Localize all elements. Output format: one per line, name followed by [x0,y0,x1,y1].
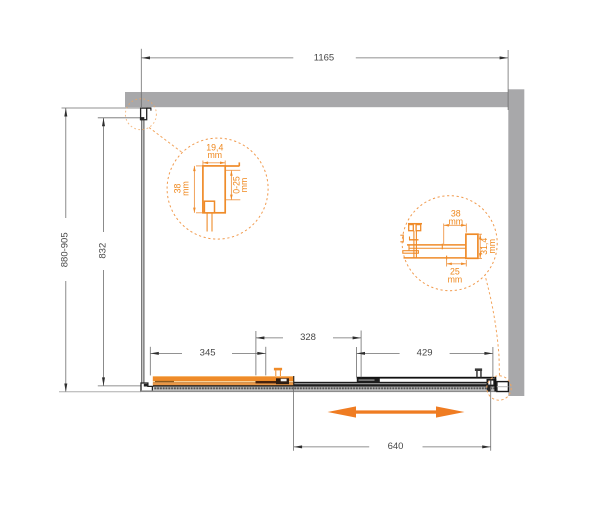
svg-text:880-905: 880-905 [60,232,71,267]
svg-text:mm: mm [207,150,222,160]
svg-text:mm: mm [448,217,463,227]
svg-text:345: 345 [200,348,216,359]
svg-text:832: 832 [97,243,108,259]
svg-text:328: 328 [300,332,316,343]
svg-text:mm: mm [448,275,463,285]
svg-text:429: 429 [417,348,433,359]
svg-text:mm: mm [239,178,249,193]
svg-text:1165: 1165 [314,52,334,63]
svg-text:mm: mm [487,239,497,254]
svg-text:640: 640 [388,441,404,452]
svg-text:mm: mm [180,181,190,196]
